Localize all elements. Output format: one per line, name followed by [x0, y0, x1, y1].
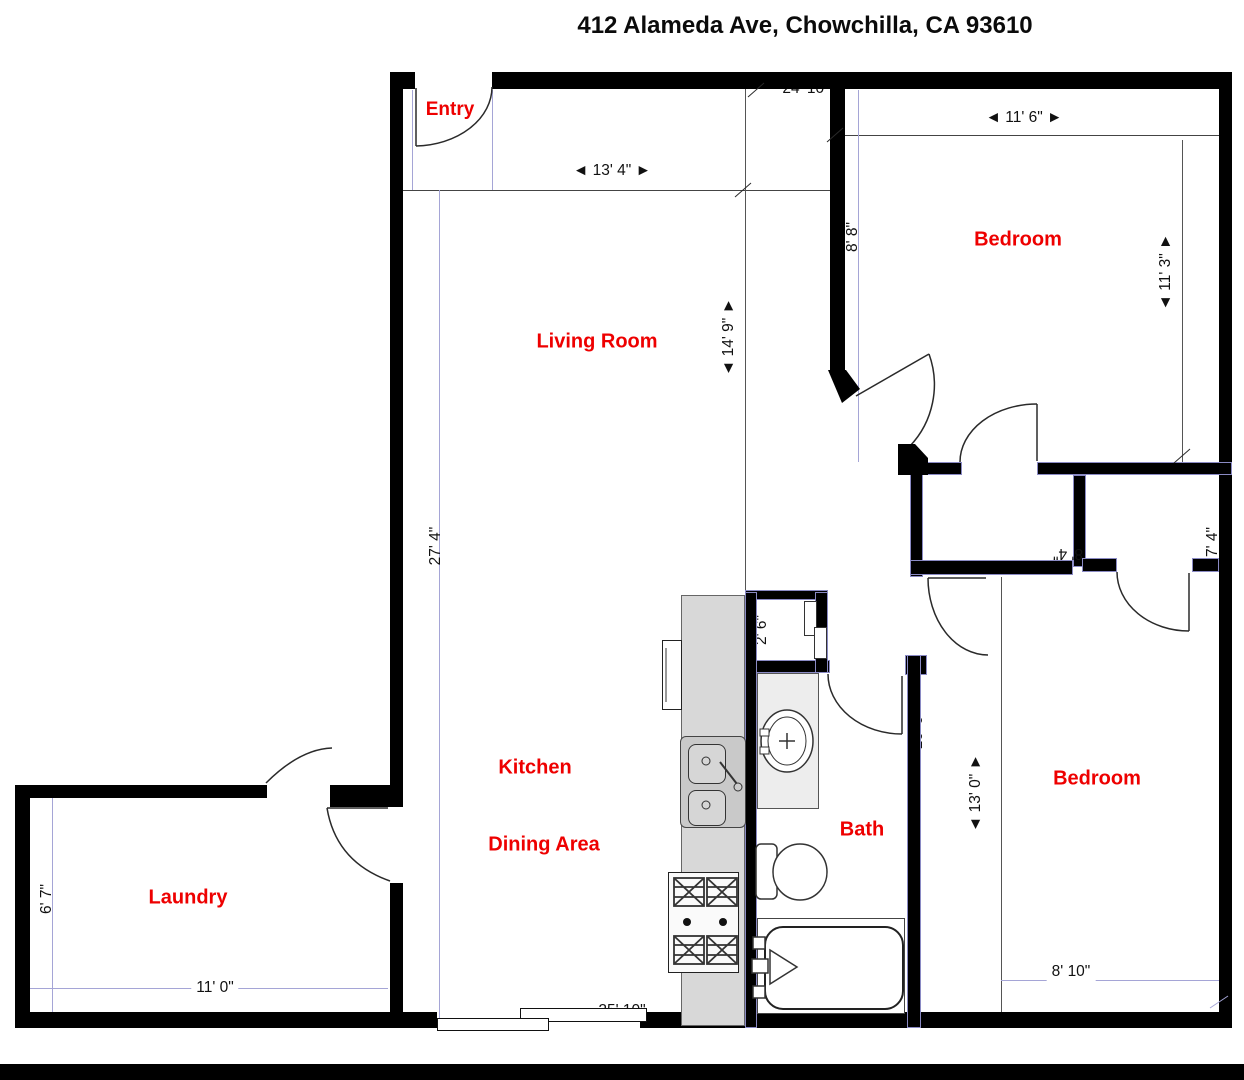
dimension-bedroom-top-depth: ◄ 11' 3" ►: [1157, 234, 1175, 311]
floor-plan: 412 Alameda Ave, Chowchilla, CA 93610 24…: [0, 0, 1244, 1080]
dimension-entry-width: ◄ 13' 4" ►: [573, 162, 651, 180]
bathroom-vanity: [757, 673, 819, 809]
dimension-bedroom-top-width: ◄ 11' 6" ►: [986, 109, 1063, 127]
bottom-border-bar: [0, 1064, 1244, 1080]
wall-closet-bottom-mid: [1082, 558, 1117, 572]
dim-line-living-depth: [745, 88, 746, 592]
bath-door-arc: [828, 674, 902, 734]
sink-basin-bottom: [688, 790, 726, 826]
dim-line-bedroom-top-width: [845, 135, 1219, 136]
laundry-door-arc: [266, 748, 332, 783]
ext-line-entry-left: [412, 90, 413, 190]
room-label-laundry: Laundry: [149, 887, 228, 910]
bedroom-top-closet-door-arc: [960, 404, 1037, 462]
dimension-laundry-depth: 6' 7": [38, 884, 56, 914]
wall-closet-bottom-right-stub: [1192, 558, 1219, 572]
dimension-bedroom-bottom-depth: ◄ 13' 0" ►: [967, 754, 985, 832]
wall-left-upper: [390, 72, 403, 807]
bedroom-bottom-door-arc: [928, 578, 988, 655]
dimension-closet-right-width: 7' 4": [1204, 527, 1222, 557]
dining-door-arc: [327, 808, 390, 881]
room-label-bedroom-bottom: Bedroom: [1053, 768, 1141, 791]
wall-laundry-left: [15, 785, 30, 1026]
dimension-living-depth: ◄ 14' 9" ►: [720, 298, 738, 376]
wall-miter-cap-1: [828, 370, 860, 403]
tub-alcove: [757, 918, 905, 1014]
dimension-hall-closet-width: 8' 4": [1053, 544, 1083, 562]
hall-door-leaf: [856, 354, 929, 396]
wall-closet-bottom-left: [910, 560, 1073, 575]
wall-closet-top-left: [920, 462, 962, 475]
wall-bath-bedroom-divider: [907, 655, 921, 1028]
dim-line-bedroom-top-wall: [858, 90, 859, 462]
sink-basin-top: [688, 744, 726, 784]
hall-door-arc: [910, 354, 934, 446]
wall-laundry-corner: [330, 785, 390, 807]
dim-line-entry-width: [398, 190, 832, 191]
dim-line-bedroom-top-depth: [1182, 140, 1183, 462]
refrigerator-icon: [662, 640, 682, 710]
bedroom-bottom-closet-door-arc: [1117, 572, 1189, 631]
toilet-tank: [756, 844, 777, 899]
wall-laundry-top: [15, 785, 267, 798]
wall-living-bedroom-divider: [830, 72, 845, 372]
dimension-bedroom-top-wall: 8' 8": [844, 222, 862, 252]
toilet-icon: [773, 844, 827, 900]
room-label-kitchen: Kitchen: [498, 757, 571, 780]
wall-closet-top-right: [1037, 462, 1232, 475]
dim-line-bedroom-bottom-width: [1001, 980, 1219, 981]
wall-top: [492, 72, 1232, 89]
wall-kitchen-bath-divider: [745, 592, 757, 1028]
sliding-door-panel-2: [437, 1018, 549, 1031]
dim-line-left-overall: [439, 190, 440, 1026]
page-title: 412 Alameda Ave, Chowchilla, CA 93610: [577, 12, 1032, 40]
room-label-entry: Entry: [426, 99, 475, 121]
room-label-dining-area: Dining Area: [488, 834, 600, 857]
dimension-laundry-width: 11' 0": [191, 979, 238, 997]
closet-door-leaf-2: [814, 627, 827, 659]
dimension-left-overall: 27' 4": [427, 527, 445, 566]
room-label-bedroom-top: Bedroom: [974, 229, 1062, 252]
dim-line-bedroom-bottom-depth: [1001, 577, 1002, 1026]
room-label-bath: Bath: [840, 819, 884, 842]
wall-bottom-left: [15, 1012, 437, 1028]
stove-icon: [668, 872, 739, 973]
room-label-living-room: Living Room: [536, 331, 657, 354]
wall-left-lower: [390, 883, 403, 1028]
dimension-bedroom-bottom-width: 8' 10": [1047, 963, 1096, 981]
ext-line-entry-right: [492, 90, 493, 190]
